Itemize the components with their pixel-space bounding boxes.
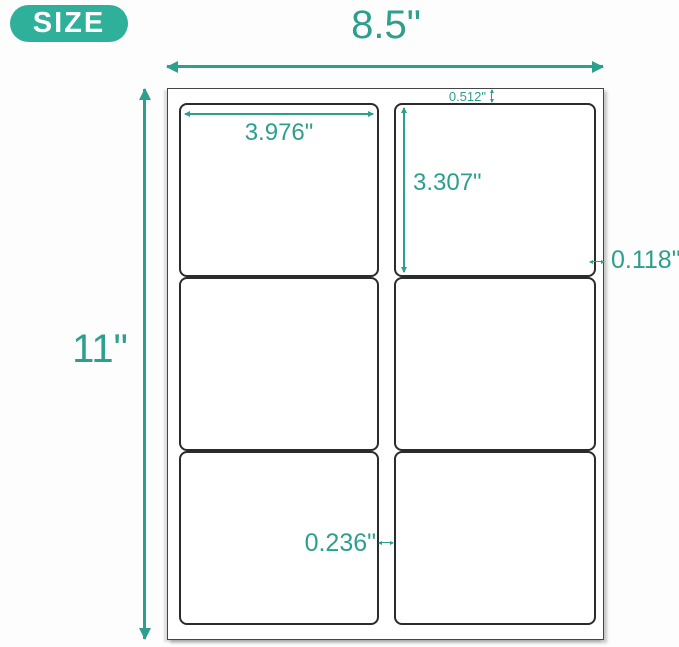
sheet-height-value: 11" (60, 327, 140, 372)
side-margin-arrow-icon (590, 261, 604, 262)
sheet-width-arrow-icon (167, 65, 603, 68)
size-badge: SIZE (10, 5, 128, 42)
label-cell-row3-col2 (394, 451, 596, 625)
label-height-arrow-icon (403, 108, 405, 272)
sheet-height-arrow-icon (143, 89, 146, 639)
top-margin-value: 0.512" (434, 89, 486, 104)
label-height-value: 3.307" (413, 169, 482, 197)
label-cell-row2-col2 (394, 277, 596, 451)
label-sheet: 3.976" 3.307" (167, 88, 604, 640)
label-cell-row2-col1 (179, 277, 379, 451)
sheet-width-value: 8.5" (326, 3, 446, 48)
label-cell-row1-col2: 3.307" (394, 103, 596, 277)
label-width-arrow-icon (185, 113, 373, 115)
side-margin-value: 0.118" (611, 246, 679, 275)
label-width-value: 3.976" (181, 119, 377, 147)
label-cell-row1-col1: 3.976" (179, 103, 379, 277)
center-gap-value: 0.236" (294, 529, 376, 558)
top-margin-arrow-icon (491, 90, 492, 102)
center-gap-arrow-icon (379, 542, 393, 543)
label-size-diagram: SIZE 8.5" 11" 3.976" 3.307" 0.512" 0.118… (0, 0, 679, 647)
